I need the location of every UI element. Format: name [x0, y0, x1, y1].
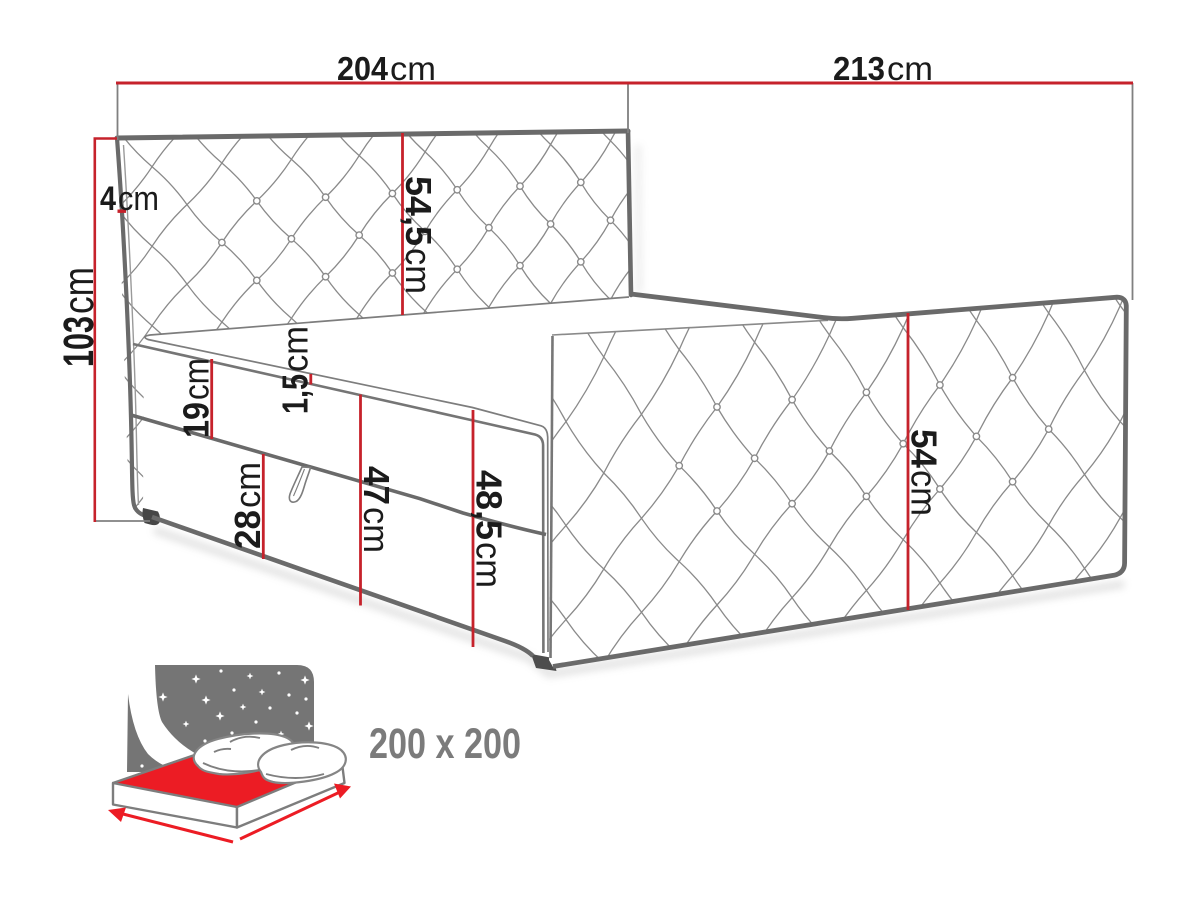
svg-text:47: 47 [356, 466, 397, 505]
svg-text:213: 213 [833, 50, 885, 87]
svg-text:cm: cm [398, 248, 439, 294]
svg-text:54: 54 [904, 429, 945, 468]
svg-text:19: 19 [176, 402, 217, 438]
svg-text:cm: cm [55, 267, 103, 314]
svg-text:cm: cm [227, 462, 268, 508]
svg-text:1,5: 1,5 [275, 374, 316, 414]
svg-text:cm: cm [390, 50, 436, 87]
svg-text:cm: cm [176, 358, 217, 400]
svg-text:4: 4 [100, 180, 116, 218]
svg-text:28: 28 [227, 510, 268, 549]
svg-text:103: 103 [55, 316, 103, 367]
svg-text:54,5: 54,5 [398, 176, 439, 246]
svg-text:200 x 200: 200 x 200 [369, 720, 521, 768]
svg-text:cm: cm [275, 326, 316, 372]
svg-text:204: 204 [337, 50, 389, 87]
svg-text:cm: cm [904, 470, 945, 516]
svg-text:cm: cm [118, 180, 159, 218]
svg-text:cm: cm [356, 507, 397, 553]
svg-text:48,5: 48,5 [469, 470, 510, 540]
svg-text:cm: cm [887, 50, 933, 87]
svg-text:cm: cm [469, 542, 510, 588]
